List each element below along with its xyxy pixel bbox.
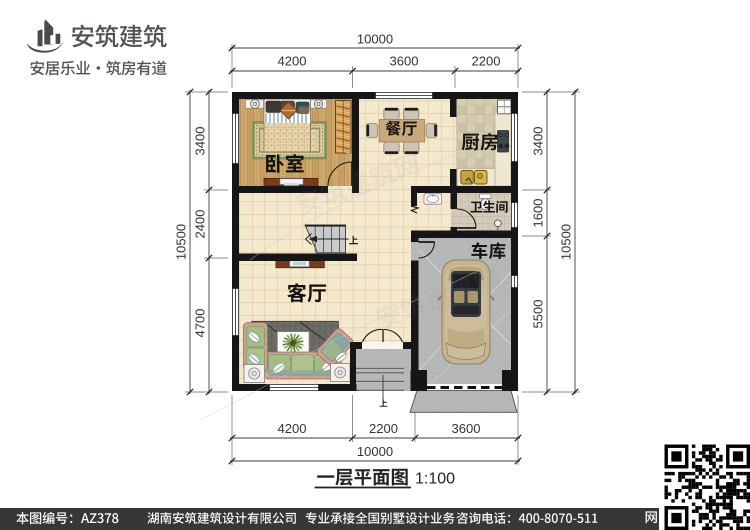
svg-text:3400: 3400 bbox=[193, 127, 208, 156]
svg-text:1600: 1600 bbox=[531, 199, 546, 228]
svg-text:4700: 4700 bbox=[193, 309, 208, 338]
svg-text:3600: 3600 bbox=[452, 421, 481, 436]
svg-text:2400: 2400 bbox=[193, 210, 208, 239]
svg-text:10000: 10000 bbox=[357, 444, 393, 459]
svg-text:5500: 5500 bbox=[531, 300, 546, 329]
svg-text:4200: 4200 bbox=[278, 54, 307, 69]
svg-text:3400: 3400 bbox=[531, 127, 546, 156]
svg-text:10500: 10500 bbox=[559, 224, 574, 260]
svg-text:10500: 10500 bbox=[174, 224, 189, 260]
svg-text:3600: 3600 bbox=[390, 54, 419, 69]
svg-text:2200: 2200 bbox=[472, 54, 501, 69]
svg-text:2200: 2200 bbox=[369, 421, 398, 436]
svg-text:1:100: 1:100 bbox=[415, 471, 455, 488]
svg-text:4200: 4200 bbox=[278, 421, 307, 436]
svg-text:10000: 10000 bbox=[357, 32, 393, 47]
